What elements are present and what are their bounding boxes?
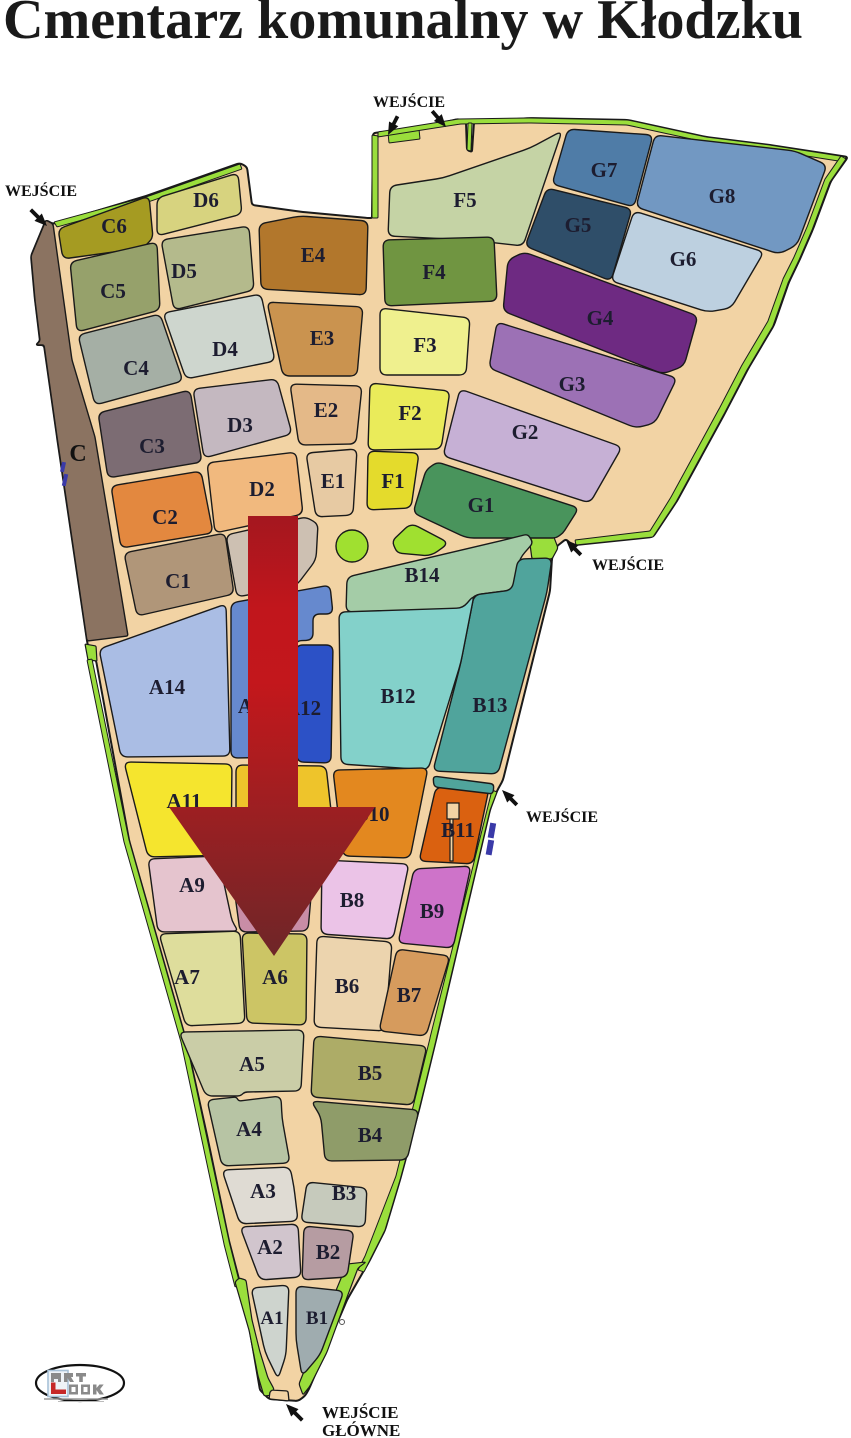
svg-text:C4: C4 xyxy=(123,356,149,380)
svg-text:G6: G6 xyxy=(670,247,697,271)
svg-text:B13: B13 xyxy=(472,693,507,717)
svg-text:B9: B9 xyxy=(420,899,445,923)
svg-text:WEJŚCIE: WEJŚCIE xyxy=(592,555,664,574)
svg-text:B6: B6 xyxy=(335,974,360,998)
svg-text:G3: G3 xyxy=(559,372,586,396)
svg-text:Cmentarz komunalny w Kłodzku: Cmentarz komunalny w Kłodzku xyxy=(3,0,803,51)
svg-text:B1: B1 xyxy=(306,1308,328,1329)
svg-text:A9: A9 xyxy=(179,873,205,897)
svg-text:B14: B14 xyxy=(404,563,440,587)
svg-text:F1: F1 xyxy=(381,469,404,493)
svg-text:B5: B5 xyxy=(358,1061,383,1085)
svg-text:F2: F2 xyxy=(398,401,421,425)
svg-text:C3: C3 xyxy=(139,434,165,458)
svg-text:B12: B12 xyxy=(380,684,415,708)
svg-text:C: C xyxy=(69,441,86,467)
svg-text:D6: D6 xyxy=(193,188,219,212)
svg-text:F3: F3 xyxy=(413,333,436,357)
svg-text:A1: A1 xyxy=(260,1308,283,1329)
svg-text:A14: A14 xyxy=(149,675,186,699)
svg-text:D4: D4 xyxy=(212,337,238,361)
svg-text:B8: B8 xyxy=(340,888,365,912)
svg-text:D2: D2 xyxy=(249,477,275,501)
svg-text:G2: G2 xyxy=(512,420,539,444)
svg-text:A2: A2 xyxy=(257,1235,283,1259)
svg-text:C1: C1 xyxy=(165,569,191,593)
svg-text:E4: E4 xyxy=(301,243,326,267)
svg-text:G4: G4 xyxy=(587,306,614,330)
svg-text:B11: B11 xyxy=(441,818,475,842)
svg-text:C2: C2 xyxy=(152,505,178,529)
svg-text:B2: B2 xyxy=(316,1240,341,1264)
svg-text:C6: C6 xyxy=(101,214,127,238)
svg-text:E1: E1 xyxy=(321,469,346,493)
svg-text:F5: F5 xyxy=(453,188,476,212)
svg-text:A6: A6 xyxy=(262,965,288,989)
svg-text:WEJŚCIE: WEJŚCIE xyxy=(526,807,598,826)
svg-text:G5: G5 xyxy=(565,213,592,237)
svg-text:F4: F4 xyxy=(422,260,446,284)
svg-text:D5: D5 xyxy=(171,259,197,283)
svg-text:WEJŚCIE: WEJŚCIE xyxy=(322,1403,399,1422)
svg-text:G8: G8 xyxy=(709,184,736,208)
svg-text:GŁÓWNE: GŁÓWNE xyxy=(322,1421,400,1438)
svg-text:A4: A4 xyxy=(236,1117,262,1141)
svg-text:C5: C5 xyxy=(100,279,126,303)
svg-text:A7: A7 xyxy=(174,965,200,989)
svg-text:WEJŚCIE: WEJŚCIE xyxy=(5,181,77,200)
svg-text:G1: G1 xyxy=(468,493,495,517)
svg-text:E2: E2 xyxy=(314,398,339,422)
svg-text:D3: D3 xyxy=(227,413,253,437)
svg-text:E3: E3 xyxy=(310,326,335,350)
svg-text:B7: B7 xyxy=(397,983,422,1007)
svg-text:G7: G7 xyxy=(591,158,618,182)
svg-text:B3: B3 xyxy=(332,1181,357,1205)
svg-text:WEJŚCIE: WEJŚCIE xyxy=(373,92,445,111)
svg-text:B4: B4 xyxy=(358,1123,383,1147)
svg-text:A3: A3 xyxy=(250,1179,276,1203)
svg-text:A5: A5 xyxy=(239,1052,265,1076)
